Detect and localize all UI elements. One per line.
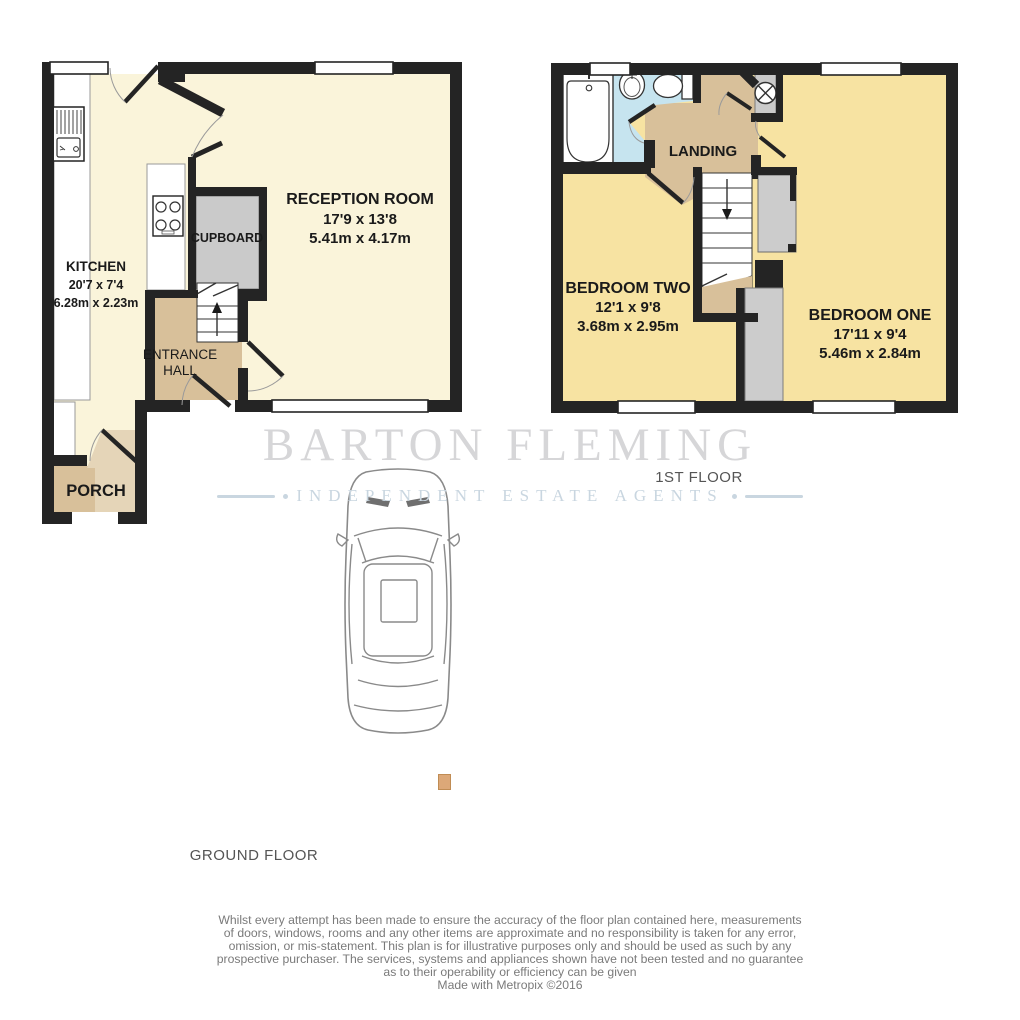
- bedroom-one-name: BEDROOM ONE: [780, 306, 960, 325]
- first-floor-title: 1ST FLOOR: [619, 469, 779, 486]
- porch-name: PORCH: [46, 482, 146, 500]
- disclaimer-line: of doors, windows, rooms and any other i…: [75, 927, 945, 940]
- bedroom-two-dims-metric: 3.68m x 2.95m: [538, 317, 718, 336]
- disclaimer-line: as to their operability or efficiency ca…: [75, 966, 945, 979]
- entrance-hall-name-line1: ENTRANCE: [130, 347, 230, 363]
- cupboard-name: CUPBOARD: [177, 229, 277, 247]
- bedroom-two-dims-imperial: 12'1 x 9'8: [538, 298, 718, 317]
- disclaimer-line: prospective purchaser. The services, sys…: [75, 953, 945, 966]
- floorplan-page: BARTON FLEMING INDEPENDENT ESTATE AGENTS: [0, 0, 1020, 1020]
- reception-dims-imperial: 17'9 x 13'8: [260, 210, 460, 230]
- tagline-dot-right: [732, 494, 737, 499]
- first-floor-plan: [545, 55, 965, 465]
- landing-floor: [645, 103, 758, 177]
- entrance-hall-name-line2: HALL: [130, 363, 230, 379]
- scale-marker: [438, 774, 451, 790]
- bedroom-two-label: BEDROOM TWO 12'1 x 9'8 3.68m x 2.95m: [538, 279, 718, 336]
- porch-label: PORCH: [46, 482, 146, 500]
- kitchen-name: KITCHEN: [26, 258, 166, 276]
- window: [821, 63, 901, 75]
- kitchen-dims-imperial: 20'7 x 7'4: [26, 276, 166, 294]
- wall-block: [755, 260, 783, 288]
- window: [813, 401, 895, 413]
- reception-room-label: RECEPTION ROOM 17'9 x 13'8 5.41m x 4.17m: [260, 190, 460, 249]
- bedroom-one-dims-imperial: 17'11 x 9'4: [780, 325, 960, 344]
- window: [50, 62, 108, 74]
- metropix-credit: Made with Metropix ©2016: [75, 979, 945, 992]
- window: [315, 62, 393, 74]
- kitchen-appliance: [52, 402, 75, 456]
- stairs-up: [197, 283, 238, 342]
- toilet: [654, 72, 694, 99]
- disclaimer-line: Whilst every attempt has been made to en…: [75, 914, 945, 927]
- bedroom-one-dims-metric: 5.46m x 2.84m: [780, 344, 960, 363]
- kitchen-label: KITCHEN 20'7 x 7'4 6.28m x 2.23m: [26, 258, 166, 312]
- window: [590, 63, 630, 75]
- window: [272, 400, 428, 412]
- kitchen-dims-metric: 6.28m x 2.23m: [26, 294, 166, 312]
- reception-room-name: RECEPTION ROOM: [260, 190, 460, 210]
- landing-name: LANDING: [643, 143, 763, 161]
- landing-label: LANDING: [643, 143, 763, 161]
- ground-floor-title: GROUND FLOOR: [154, 847, 354, 864]
- window: [618, 401, 695, 413]
- disclaimer: Whilst every attempt has been made to en…: [75, 914, 945, 991]
- kitchen-sink: [53, 107, 84, 161]
- chimney-breast: [736, 288, 783, 401]
- bathtub: [563, 70, 613, 168]
- reception-dims-metric: 5.41m x 4.17m: [260, 229, 460, 249]
- bedroom-one-label: BEDROOM ONE 17'11 x 9'4 5.46m x 2.84m: [780, 306, 960, 363]
- airing-cupboard: [755, 69, 776, 118]
- entrance-hall-label: ENTRANCE HALL: [130, 347, 230, 379]
- built-in-wardrobe: [758, 175, 796, 252]
- cupboard-label: CUPBOARD: [177, 229, 277, 247]
- bedroom-two-name: BEDROOM TWO: [538, 279, 718, 298]
- tagline-rule-right: [745, 495, 803, 498]
- disclaimer-line: omission, or mis-statement. This plan is…: [75, 940, 945, 953]
